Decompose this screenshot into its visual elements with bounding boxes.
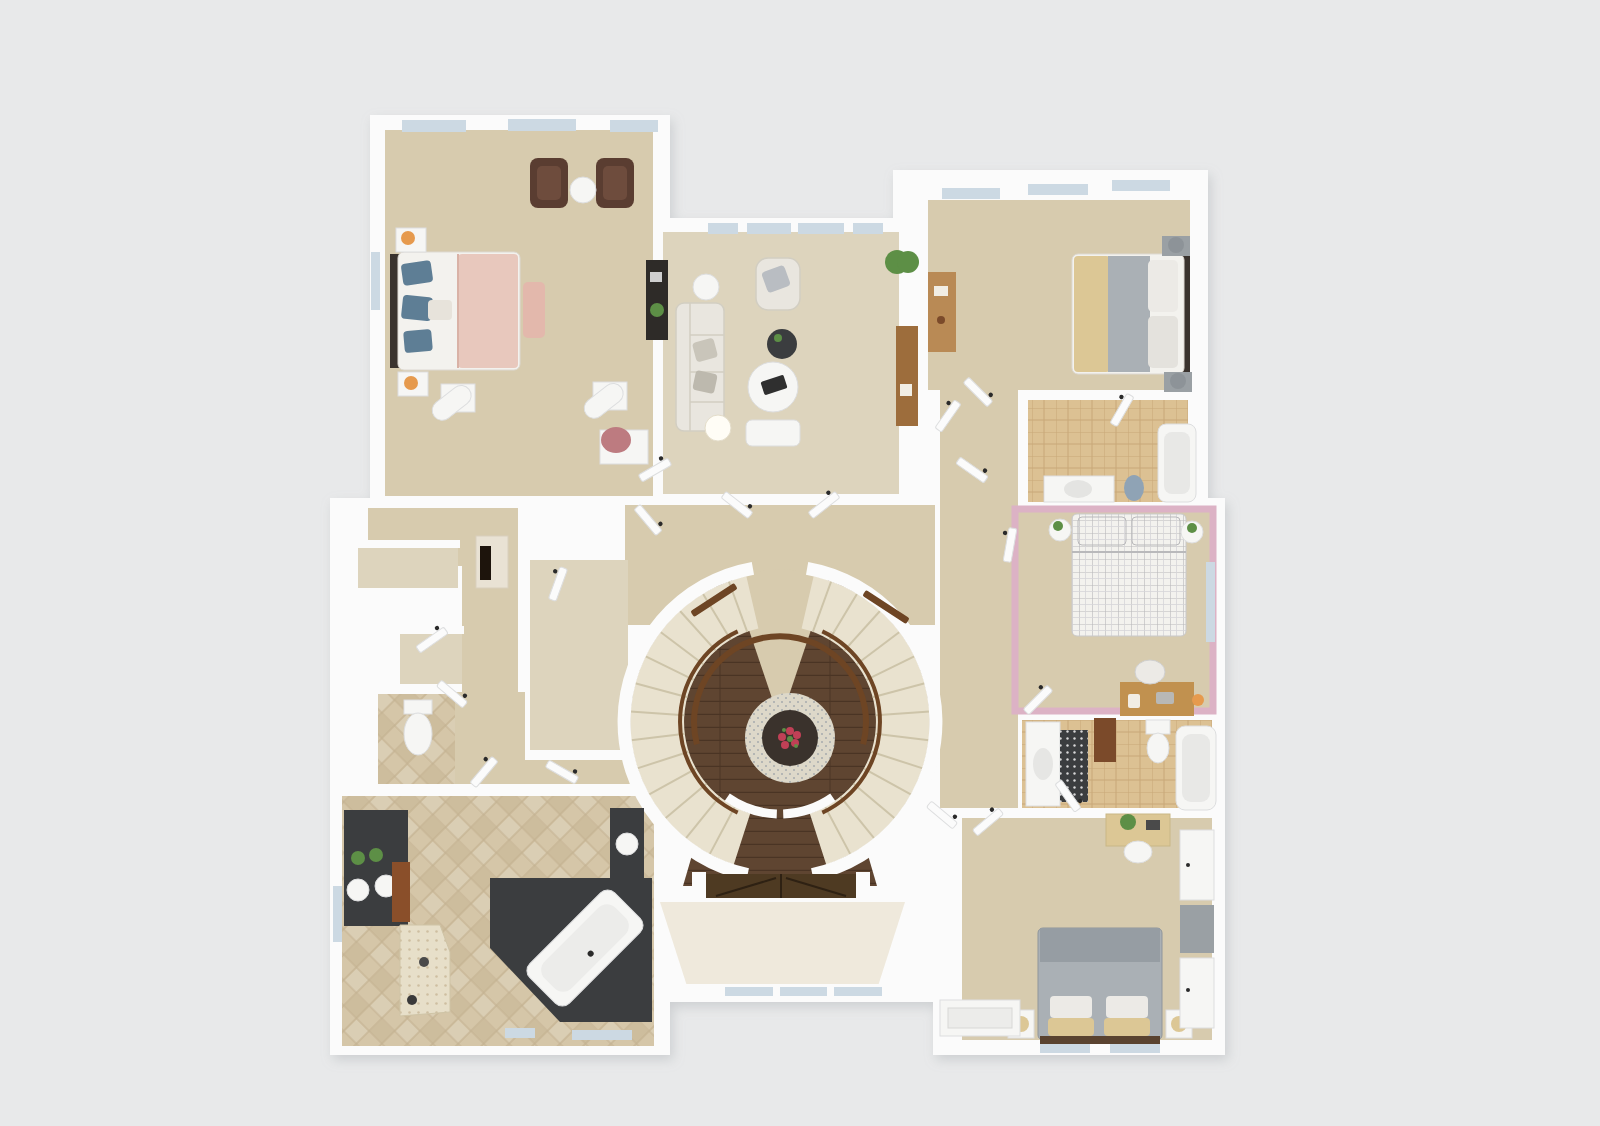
desk-chair — [1135, 660, 1165, 684]
lamp-icon — [401, 231, 415, 245]
linen-closet-1-floor — [358, 546, 458, 592]
sofa — [676, 303, 724, 431]
nightstand-top — [1162, 236, 1190, 256]
vanity-sink — [1044, 476, 1114, 502]
gray-bed — [1038, 928, 1162, 1044]
toilet — [404, 713, 432, 755]
lamp-icon — [1170, 373, 1186, 389]
grid-bed — [1072, 514, 1186, 636]
wood-console — [896, 326, 918, 426]
sink — [347, 879, 369, 901]
pink-chair — [601, 427, 631, 453]
plant-icon — [369, 848, 383, 862]
sink — [616, 833, 638, 855]
window — [1112, 180, 1170, 191]
armchair — [756, 258, 800, 310]
plant-icon — [897, 251, 919, 273]
floor-plan-render — [0, 0, 1600, 1126]
bay-window-1 — [725, 987, 773, 996]
nightstand-top — [396, 228, 426, 252]
foyer-rug — [745, 693, 835, 783]
window — [1206, 562, 1215, 642]
plant-icon — [650, 303, 664, 317]
lamp-icon — [404, 376, 418, 390]
orange-decor — [1192, 694, 1204, 706]
master-bed — [390, 252, 520, 370]
staircase-foyer — [624, 568, 936, 1000]
window — [610, 120, 658, 132]
nightstand-bottom — [398, 372, 428, 396]
bed — [1072, 254, 1190, 374]
bed-bench — [523, 282, 545, 338]
shower — [400, 925, 450, 1016]
window — [942, 188, 1000, 199]
window — [798, 223, 844, 234]
dark-side-table — [767, 329, 797, 359]
plant-stand-left — [1049, 519, 1071, 541]
window — [371, 252, 380, 310]
plant-icon — [351, 851, 365, 865]
black-vanity-desk — [646, 260, 668, 340]
plant-icon — [774, 334, 782, 342]
vanity-sink — [1026, 722, 1060, 806]
bathtub — [1176, 726, 1216, 810]
window-bench — [940, 1000, 1020, 1036]
window — [508, 119, 576, 131]
wood-cabinet — [1094, 718, 1116, 762]
wood-cabinet — [392, 862, 410, 922]
fireplace — [476, 536, 508, 588]
window — [708, 223, 738, 234]
window — [853, 223, 883, 234]
shower-control-icon — [407, 995, 417, 1005]
wardrobes — [1180, 830, 1214, 1028]
bay-window-3 — [834, 987, 882, 996]
entry-bay — [660, 872, 905, 1000]
window — [402, 120, 466, 132]
nightstand-bottom — [1164, 372, 1192, 392]
bathtub — [1158, 424, 1196, 502]
lamp-icon — [1168, 237, 1184, 253]
walk-in-closet-floor — [530, 560, 628, 750]
plant-icon — [1120, 814, 1136, 830]
plant-stand-right — [1181, 521, 1203, 543]
window — [505, 1028, 535, 1038]
side-table — [570, 177, 596, 203]
window — [1040, 1044, 1090, 1053]
toilet — [1146, 720, 1170, 763]
drain-icon — [419, 957, 429, 967]
white-desk-pink-chair — [600, 427, 648, 464]
window — [1028, 184, 1088, 195]
coffee-table — [748, 362, 798, 412]
toilet — [1124, 475, 1144, 501]
bay-window-2 — [780, 987, 827, 996]
ottoman-bench — [746, 420, 800, 446]
floor-lamp — [705, 415, 731, 441]
hallway-right-floor — [940, 390, 1018, 808]
desk-chair — [1124, 841, 1152, 863]
window — [1110, 1044, 1160, 1053]
window — [747, 223, 791, 234]
window — [333, 886, 342, 942]
laptop-icon — [1156, 692, 1174, 704]
double-vanity — [344, 810, 410, 926]
end-table — [693, 274, 719, 300]
bay-wall — [660, 902, 905, 986]
writing-desk — [928, 272, 956, 352]
water-closet — [404, 700, 432, 755]
window — [572, 1030, 632, 1040]
